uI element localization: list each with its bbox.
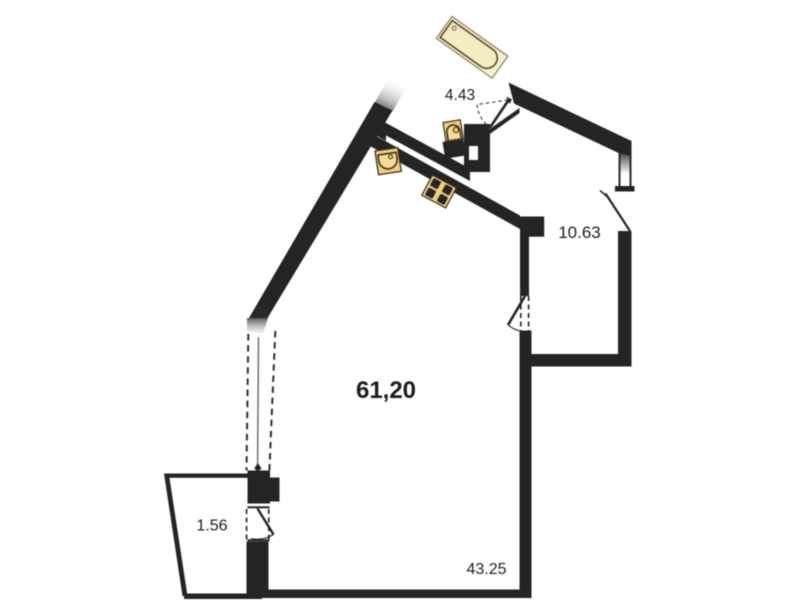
svg-text:1.56: 1.56: [196, 518, 227, 535]
svg-text:4.43: 4.43: [445, 87, 475, 104]
svg-text:10.63: 10.63: [558, 223, 601, 242]
svg-text:61,20: 61,20: [356, 377, 416, 404]
svg-text:43.25: 43.25: [466, 561, 506, 578]
